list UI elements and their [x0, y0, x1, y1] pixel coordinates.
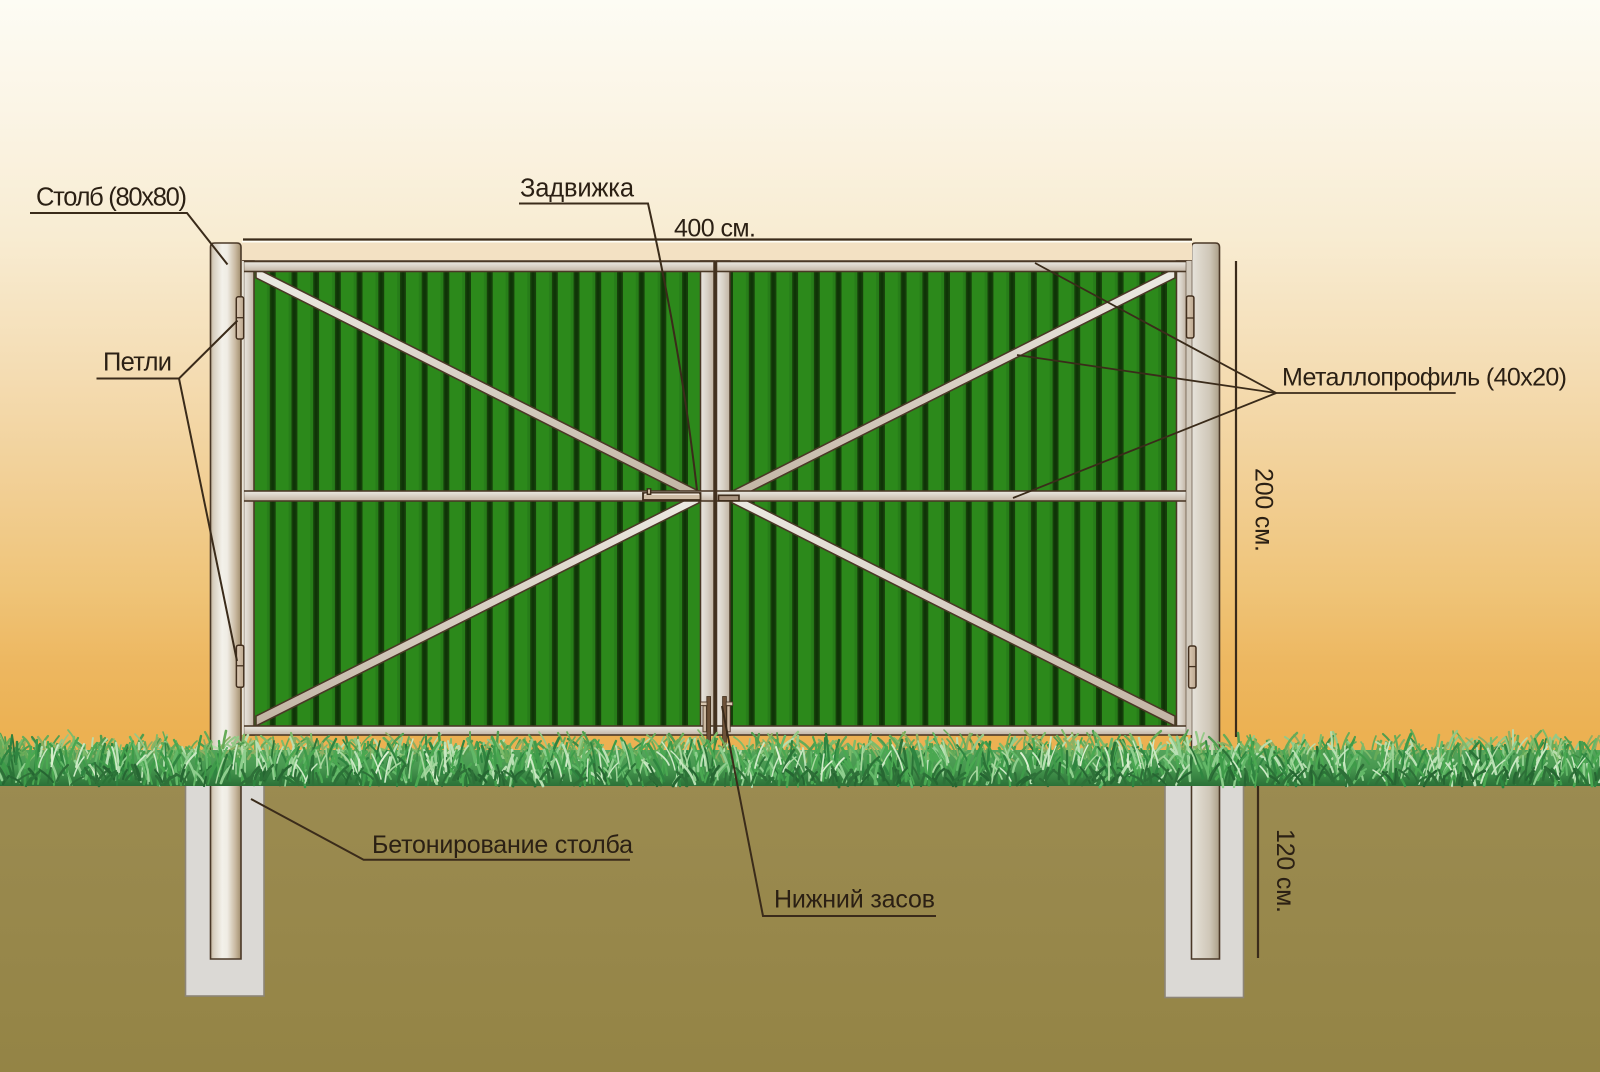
svg-text:Бетонирование столба: Бетонирование столба — [372, 831, 633, 859]
svg-text:Петли: Петли — [103, 349, 172, 377]
svg-text:400 см.: 400 см. — [674, 215, 756, 243]
svg-text:120 см.: 120 см. — [1271, 829, 1299, 913]
svg-text:Металлопрофиль (40x20): Металлопрофиль (40x20) — [1282, 364, 1567, 392]
svg-text:Нижний засов: Нижний засов — [774, 886, 935, 914]
svg-text:Столб (80x80): Столб (80x80) — [36, 184, 187, 212]
svg-text:Задвижка: Задвижка — [520, 175, 635, 203]
svg-text:200 см.: 200 см. — [1250, 468, 1278, 552]
